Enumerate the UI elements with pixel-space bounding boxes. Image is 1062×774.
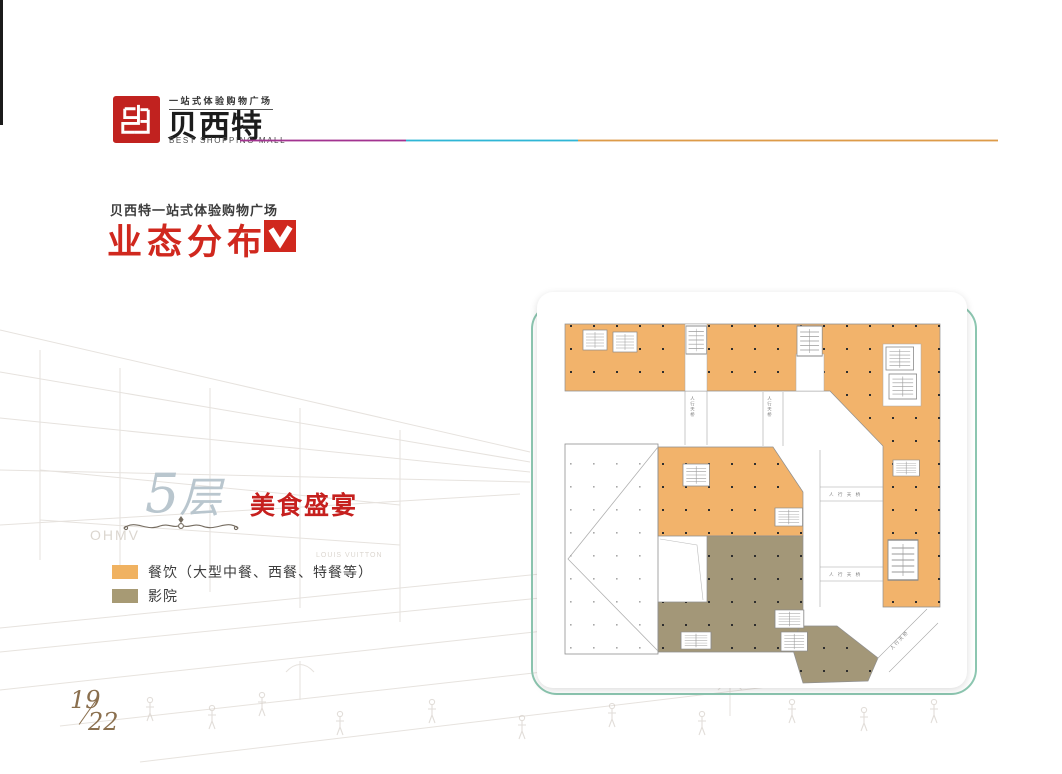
floor-theme-title: 美食盛宴	[250, 486, 358, 522]
page-number: 19 22	[64, 686, 128, 740]
page-title: 业态分布	[107, 214, 267, 265]
legend-swatch-dining	[112, 565, 138, 579]
floor-flourish-ornament	[120, 514, 242, 536]
check-icon	[264, 220, 296, 252]
legend-label-cinema: 影院	[148, 586, 178, 606]
plan-legend: 餐饮（大型中餐、西餐、特餐等） 影院	[112, 560, 373, 608]
floor-plan: 人行天桥 人行天桥 人 行 天 桥 人 行 天 桥 人行天桥	[537, 292, 967, 688]
brand-logo-icon	[113, 96, 160, 143]
bridge-label-vertical-1: 人行天桥	[690, 396, 696, 418]
bridge-label-vertical-2: 人行天桥	[767, 396, 773, 418]
legend-swatch-cinema	[112, 589, 138, 603]
legend-item-cinema: 影院	[112, 584, 373, 608]
legend-item-dining: 餐饮（大型中餐、西餐、特餐等）	[112, 560, 373, 584]
header-rule	[240, 139, 998, 142]
page-edge-accent	[0, 0, 3, 125]
bridge-label-right-2: 人 行 天 桥	[829, 571, 862, 578]
slide-page: OHMV LOUIS VUITTON 一站式体验购物广场 贝西特 BEST SH…	[0, 0, 1062, 774]
bridge-label-right-1: 人 行 天 桥	[829, 491, 862, 498]
background-sign-right: LOUIS VUITTON	[316, 552, 383, 559]
page-number-total: 22	[88, 708, 119, 736]
bridge-label-diagonal: 人行天桥	[888, 629, 910, 651]
floor-plan-card: 人行天桥 人行天桥 人 行 天 桥 人 行 天 桥 人行天桥	[537, 292, 967, 688]
legend-label-dining: 餐饮（大型中餐、西餐、特餐等）	[148, 562, 373, 582]
